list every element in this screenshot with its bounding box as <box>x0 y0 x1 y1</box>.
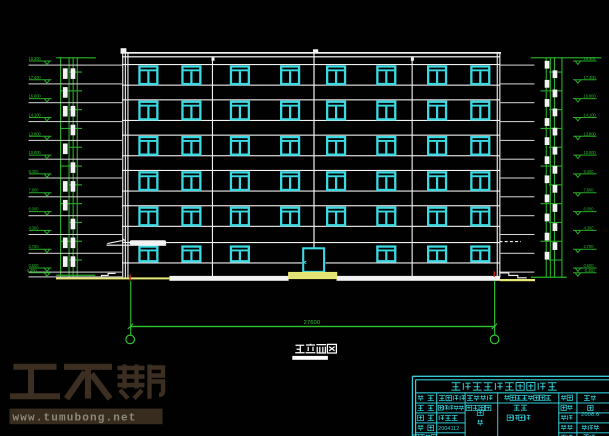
svg-text:13.800: 13.800 <box>584 131 597 136</box>
svg-text:4.300: 4.300 <box>29 225 40 230</box>
svg-text:2.700: 2.700 <box>29 244 40 249</box>
svg-text:2008.6: 2008.6 <box>581 412 599 418</box>
svg-text:-0.450: -0.450 <box>584 268 596 273</box>
svg-text:10.800: 10.800 <box>584 150 597 155</box>
svg-text:-0.450: -0.450 <box>26 268 38 273</box>
svg-text:7.800: 7.800 <box>29 188 40 193</box>
svg-text:7.800: 7.800 <box>584 188 595 193</box>
svg-text:13.800: 13.800 <box>29 131 42 136</box>
svg-text:14.100: 14.100 <box>584 113 597 118</box>
svg-text:18.300: 18.300 <box>584 56 597 61</box>
svg-text:17.400: 17.400 <box>584 75 597 80</box>
svg-text:4.300: 4.300 <box>584 225 595 230</box>
svg-text:2004112: 2004112 <box>438 426 459 432</box>
svg-text:6.000: 6.000 <box>29 207 40 212</box>
svg-text:27600: 27600 <box>304 320 321 326</box>
svg-text:16.800: 16.800 <box>29 94 42 99</box>
svg-text:9.300: 9.300 <box>29 169 40 174</box>
svg-text:18.300: 18.300 <box>29 56 42 61</box>
svg-text:www.tumubong.net: www.tumubong.net <box>13 413 137 425</box>
svg-text:16.800: 16.800 <box>584 94 597 99</box>
svg-text:9.300: 9.300 <box>584 169 595 174</box>
svg-text:17.400: 17.400 <box>29 75 42 80</box>
svg-text:6.000: 6.000 <box>584 207 595 212</box>
svg-text:10.800: 10.800 <box>29 150 42 155</box>
svg-text:2.700: 2.700 <box>584 244 595 249</box>
svg-text:14.100: 14.100 <box>29 113 42 118</box>
